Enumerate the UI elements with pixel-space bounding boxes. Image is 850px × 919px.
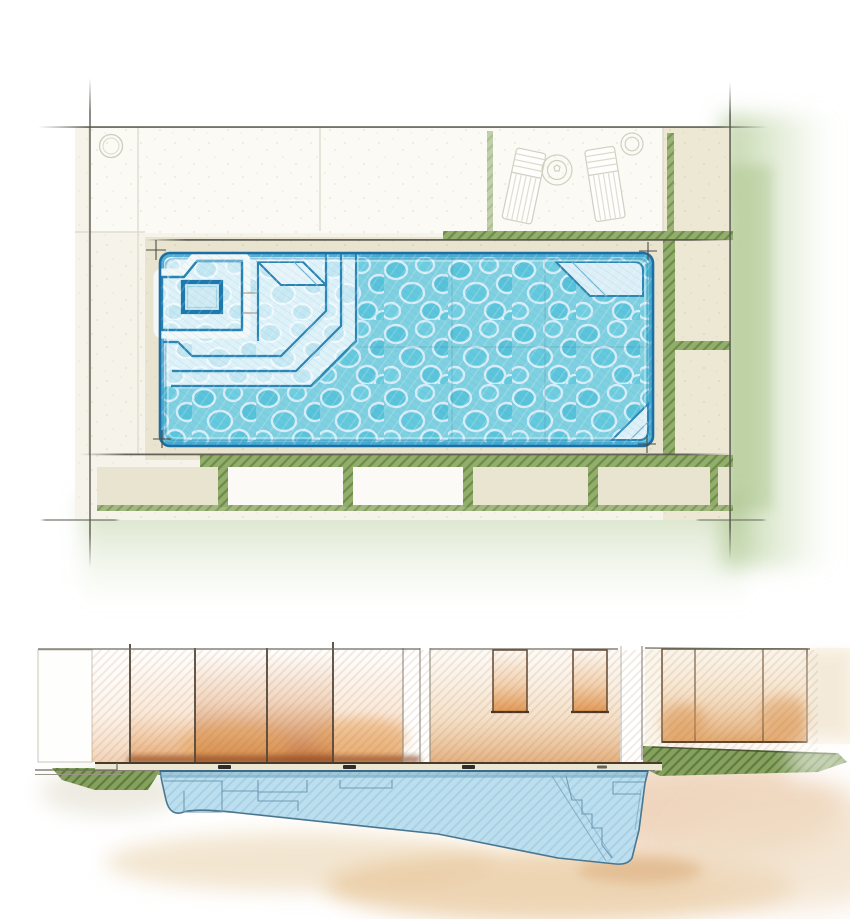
grass-joint-vertical-top <box>487 131 493 231</box>
water-hatch-overlay <box>160 253 653 446</box>
section-view <box>35 642 850 919</box>
grass-joint-vertical-topright <box>667 133 674 233</box>
grass-joint-right-column <box>663 238 675 460</box>
waterline-shade <box>161 771 647 778</box>
grass-joint-right-h1 <box>675 341 730 350</box>
paver <box>97 467 218 505</box>
paver <box>598 467 710 505</box>
fence-top-lines <box>38 648 810 649</box>
deck-line-above-pool <box>145 239 733 241</box>
fence-background <box>38 642 850 767</box>
plan-view <box>38 78 834 606</box>
paver <box>718 467 730 505</box>
grass-joint-bottom-row-base <box>97 505 733 511</box>
pool-rendering-canvas <box>0 0 850 919</box>
illustration-svg <box>0 0 850 919</box>
fence-panel-a <box>38 650 92 762</box>
grass-right-fade <box>790 742 850 780</box>
pool-plan <box>146 240 657 453</box>
grass-joint-top-band <box>443 231 733 240</box>
paver <box>353 467 463 505</box>
section-coping-fill <box>95 764 662 771</box>
deck-line-below-pool <box>80 454 733 456</box>
paver <box>228 467 343 505</box>
fence-hatch-overlay <box>92 650 818 764</box>
paver <box>473 467 588 505</box>
